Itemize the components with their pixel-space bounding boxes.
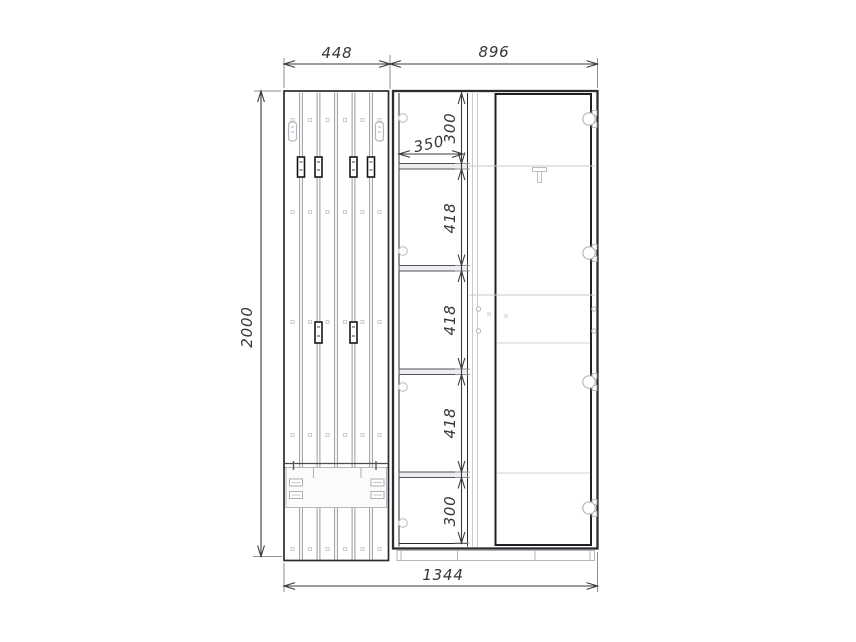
coat-hook bbox=[350, 322, 357, 343]
coat-hook bbox=[315, 322, 322, 343]
dim-total-width-label: 1344 bbox=[422, 566, 463, 584]
wardrobe-door bbox=[496, 94, 592, 545]
plinth bbox=[397, 551, 595, 561]
technical-drawing-sheet: 448 896 2000 1344 350 300 418 418 418 30… bbox=[0, 0, 856, 642]
dim-compartment-1-label: 300 bbox=[441, 112, 459, 143]
shelf-pin bbox=[399, 383, 408, 392]
dim-compartment-3-label: 418 bbox=[441, 304, 459, 335]
bench-body bbox=[286, 468, 387, 508]
dim-compartment-5-label: 300 bbox=[441, 495, 459, 526]
dim-total-height-label: 2000 bbox=[238, 306, 256, 347]
dim-compartment-2-label: 418 bbox=[441, 202, 459, 233]
coat-hook bbox=[350, 157, 357, 177]
shelf-pin bbox=[399, 247, 408, 256]
shelf-board bbox=[399, 472, 468, 478]
coat-hook bbox=[298, 157, 305, 177]
coat-hook bbox=[368, 157, 375, 177]
fitting-pin bbox=[476, 307, 480, 311]
hinge-cup bbox=[583, 376, 595, 388]
hinge-cup bbox=[583, 247, 595, 259]
coat-hook bbox=[315, 157, 322, 177]
shelf-board bbox=[399, 164, 468, 170]
hinge-cup bbox=[583, 502, 595, 514]
shelf-pin bbox=[399, 114, 408, 123]
dim-panel-width-label: 448 bbox=[321, 44, 352, 62]
wardrobe-cabinet bbox=[393, 91, 598, 561]
hanger-rail-stem bbox=[538, 172, 542, 183]
fitting-pin bbox=[592, 307, 596, 311]
bench-shelf bbox=[284, 461, 389, 508]
fitting-pin bbox=[592, 329, 596, 333]
wardrobe-elevation-drawing: 448 896 2000 1344 350 300 418 418 418 30… bbox=[0, 0, 856, 642]
hinge-cup bbox=[583, 113, 595, 125]
shelf-pin bbox=[399, 519, 408, 528]
dim-cabinet-width-label: 896 bbox=[478, 43, 509, 61]
hanger-rail-bracket bbox=[533, 168, 547, 172]
shelf-board bbox=[399, 369, 468, 375]
shelf-board bbox=[399, 266, 468, 272]
dim-compartment-4-label: 418 bbox=[441, 407, 459, 438]
fitting-pin bbox=[476, 329, 480, 333]
